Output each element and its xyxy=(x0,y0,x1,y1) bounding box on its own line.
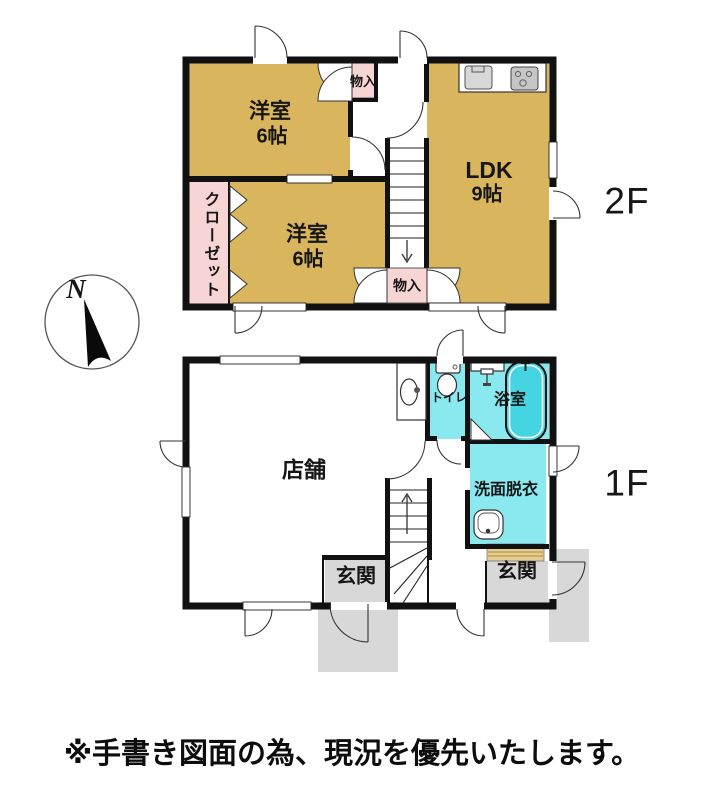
room-label-storage-top: 物入 xyxy=(350,75,376,89)
compass xyxy=(45,275,139,369)
room-label-yoshitsu-b: 洋室 xyxy=(286,224,328,246)
room-label-closet: クローゼット xyxy=(201,191,218,299)
room-label-ldk: LDK xyxy=(465,158,512,182)
2f-stairs xyxy=(390,148,424,262)
room-size-yoshitsu-b: 6帖 xyxy=(292,250,323,271)
room-label-bath: 浴室 xyxy=(494,393,526,410)
room-label-storage-bottom: 物入 xyxy=(393,279,421,294)
floorplan-page: 洋室 6帖 洋室 6帖 LDK 9帖 クローゼット 物入 物入 2F 1F N … xyxy=(0,0,704,800)
room-label-yoshitsu-a: 洋室 xyxy=(249,101,291,123)
porch-left xyxy=(318,602,398,672)
room-size-yoshitsu-a: 6帖 xyxy=(256,127,287,148)
down-arrow-icon xyxy=(402,240,412,262)
up-arrow-icon xyxy=(402,494,412,534)
room-label-entrance-right: 玄関 xyxy=(497,562,537,583)
room-size-ldk: 9帖 xyxy=(471,185,502,206)
kitchen-sink-icon xyxy=(465,66,492,89)
stove-icon xyxy=(511,67,538,90)
washbasin-icon xyxy=(474,510,503,539)
hand-sink-icon xyxy=(397,363,426,420)
room-label-shop: 店舗 xyxy=(282,458,326,481)
kitchen-counter xyxy=(459,63,546,92)
room-label-washroom: 洗面脱衣 xyxy=(474,483,538,500)
floor-label-2f: 2F xyxy=(604,183,649,222)
compass-north-label: N xyxy=(66,275,86,303)
compass-needle-icon xyxy=(84,299,111,367)
room-label-toilet: トイレ xyxy=(431,392,467,405)
floorplan-graphics xyxy=(0,0,704,800)
room-label-entrance-left: 玄関 xyxy=(336,567,376,588)
disclaimer-note: ※手書き図面の為、現況を優先いたします。 xyxy=(0,730,704,772)
1f-stairs xyxy=(390,490,427,603)
floor-label-1f: 1F xyxy=(604,465,649,504)
